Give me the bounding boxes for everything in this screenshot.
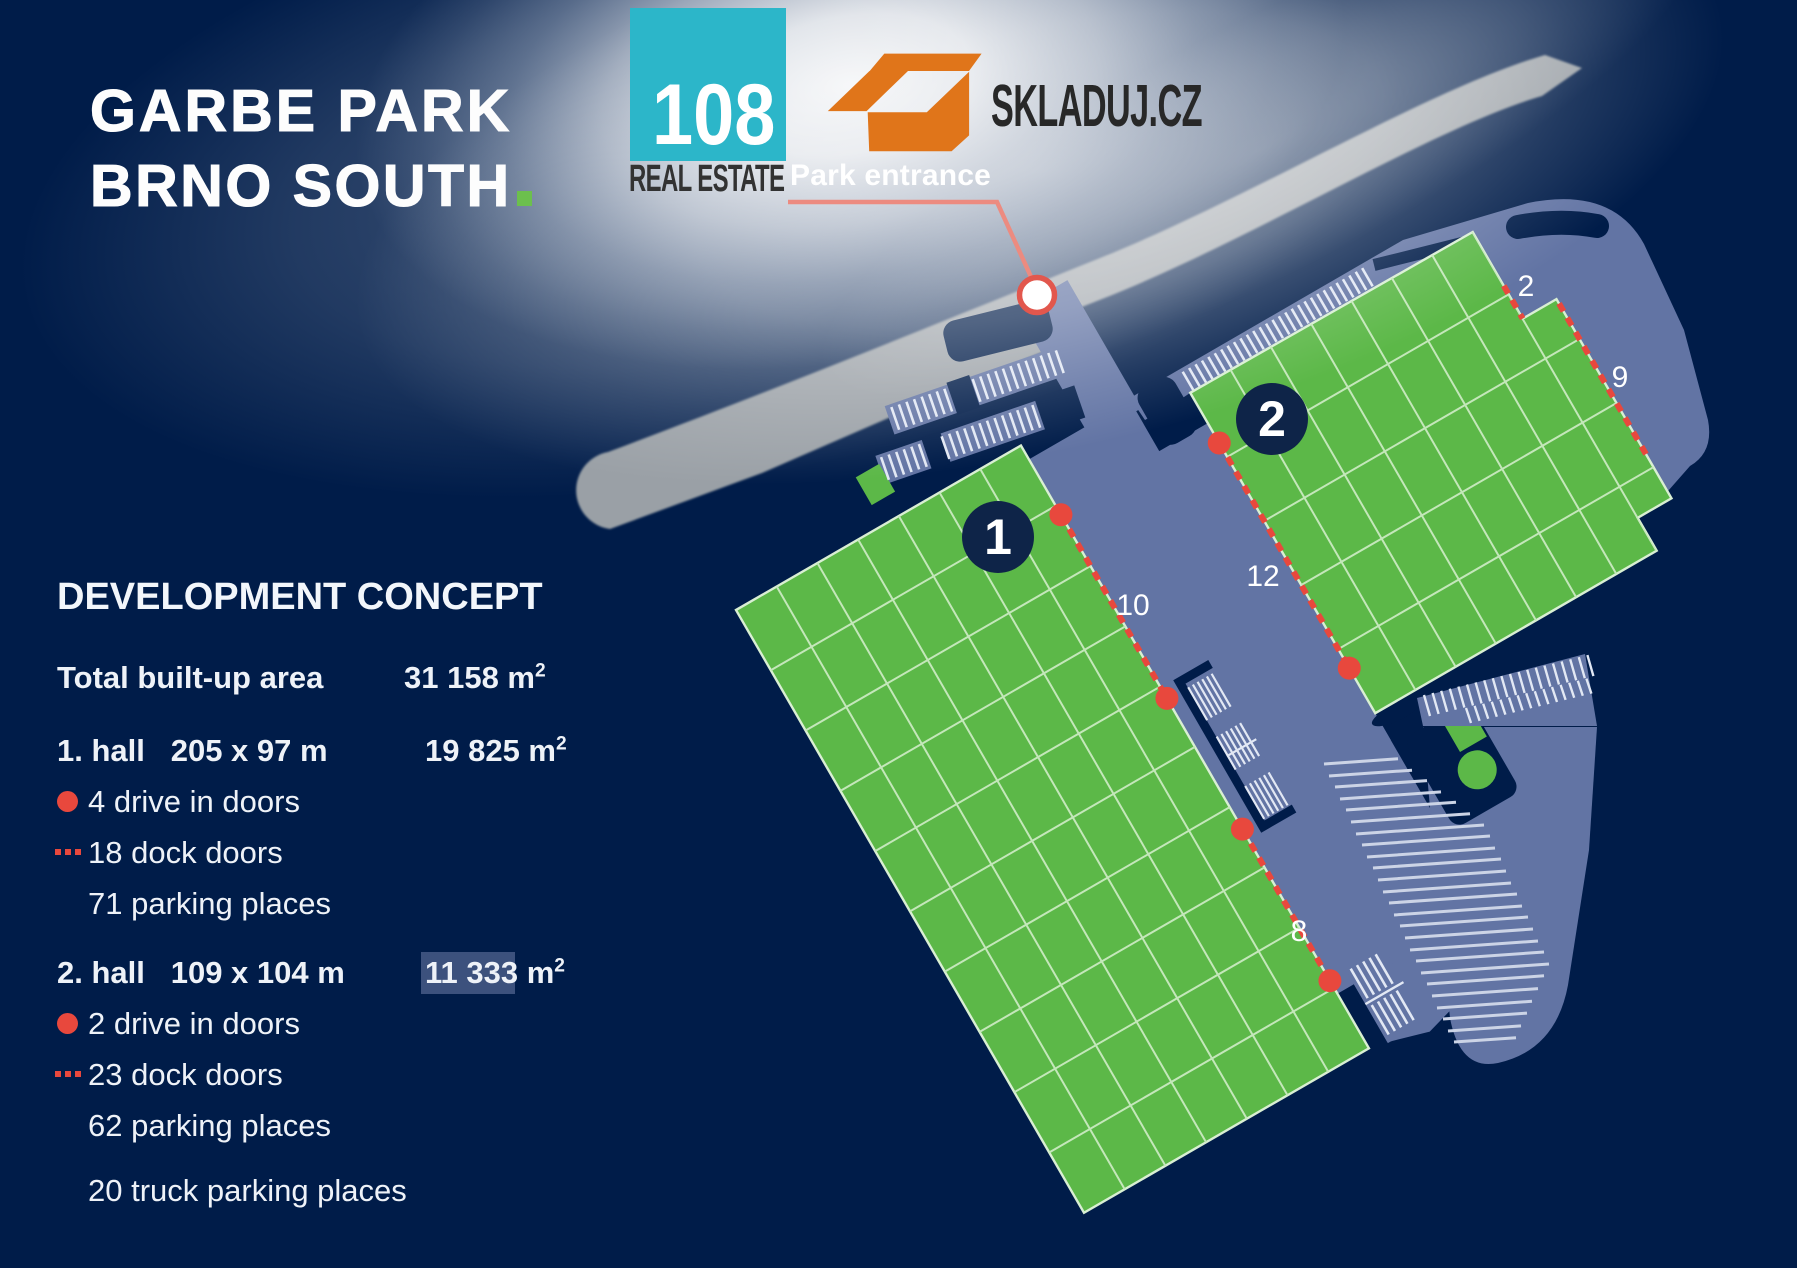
svg-text:12: 12: [1246, 560, 1279, 593]
svg-text:2: 2: [1258, 391, 1286, 447]
svg-text:2: 2: [1518, 270, 1535, 303]
svg-text:1: 1: [984, 509, 1012, 565]
svg-text:9: 9: [1612, 361, 1629, 394]
svg-text:8: 8: [1291, 915, 1308, 948]
svg-text:10: 10: [1116, 589, 1149, 622]
